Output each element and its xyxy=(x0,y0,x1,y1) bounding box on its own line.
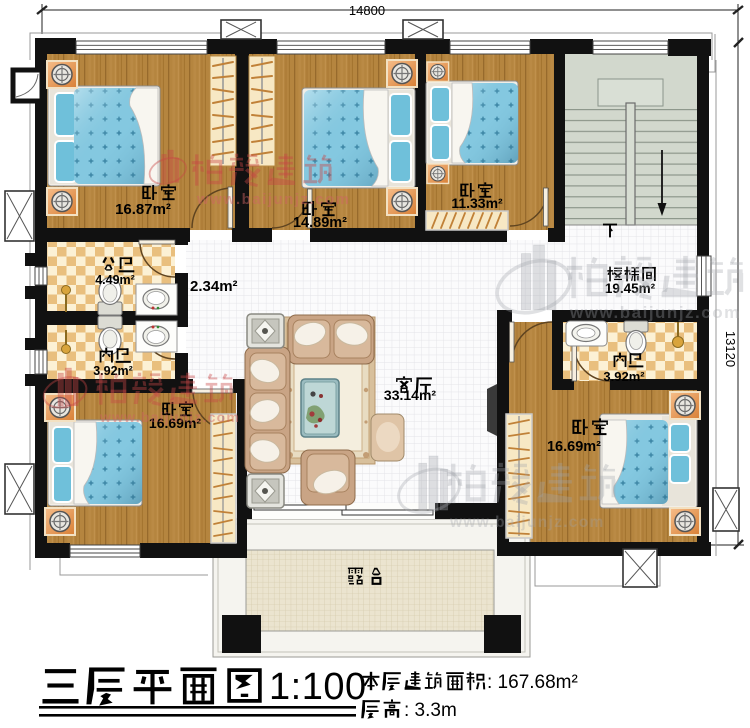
svg-text:1:100: 1:100 xyxy=(269,666,367,708)
svg-text:: 3.3m: : 3.3m xyxy=(404,700,457,721)
svg-text:16.69m²: 16.69m² xyxy=(547,439,601,455)
svg-text:3.92m²: 3.92m² xyxy=(603,369,645,384)
svg-text:14800: 14800 xyxy=(349,3,385,18)
svg-text:4.49m²: 4.49m² xyxy=(95,273,135,287)
svg-text:11.33m²: 11.33m² xyxy=(451,195,503,211)
svg-text:16.87m²: 16.87m² xyxy=(115,201,171,218)
svg-text:www.baijunjz.com: www.baijunjz.com xyxy=(449,514,605,531)
svg-text:2.34m²: 2.34m² xyxy=(190,278,238,295)
svg-text:www.baijunjz.com: www.baijunjz.com xyxy=(569,303,741,322)
svg-text:: 167.68m²: : 167.68m² xyxy=(487,672,578,693)
svg-text:14.89m²: 14.89m² xyxy=(293,215,347,231)
svg-text:33.14m²: 33.14m² xyxy=(384,387,436,403)
svg-text:www.baijunjz.com: www.baijunjz.com xyxy=(99,409,240,425)
svg-text:13120: 13120 xyxy=(723,331,738,367)
svg-text:www.baijunjz.com: www.baijunjz.com xyxy=(196,191,350,208)
